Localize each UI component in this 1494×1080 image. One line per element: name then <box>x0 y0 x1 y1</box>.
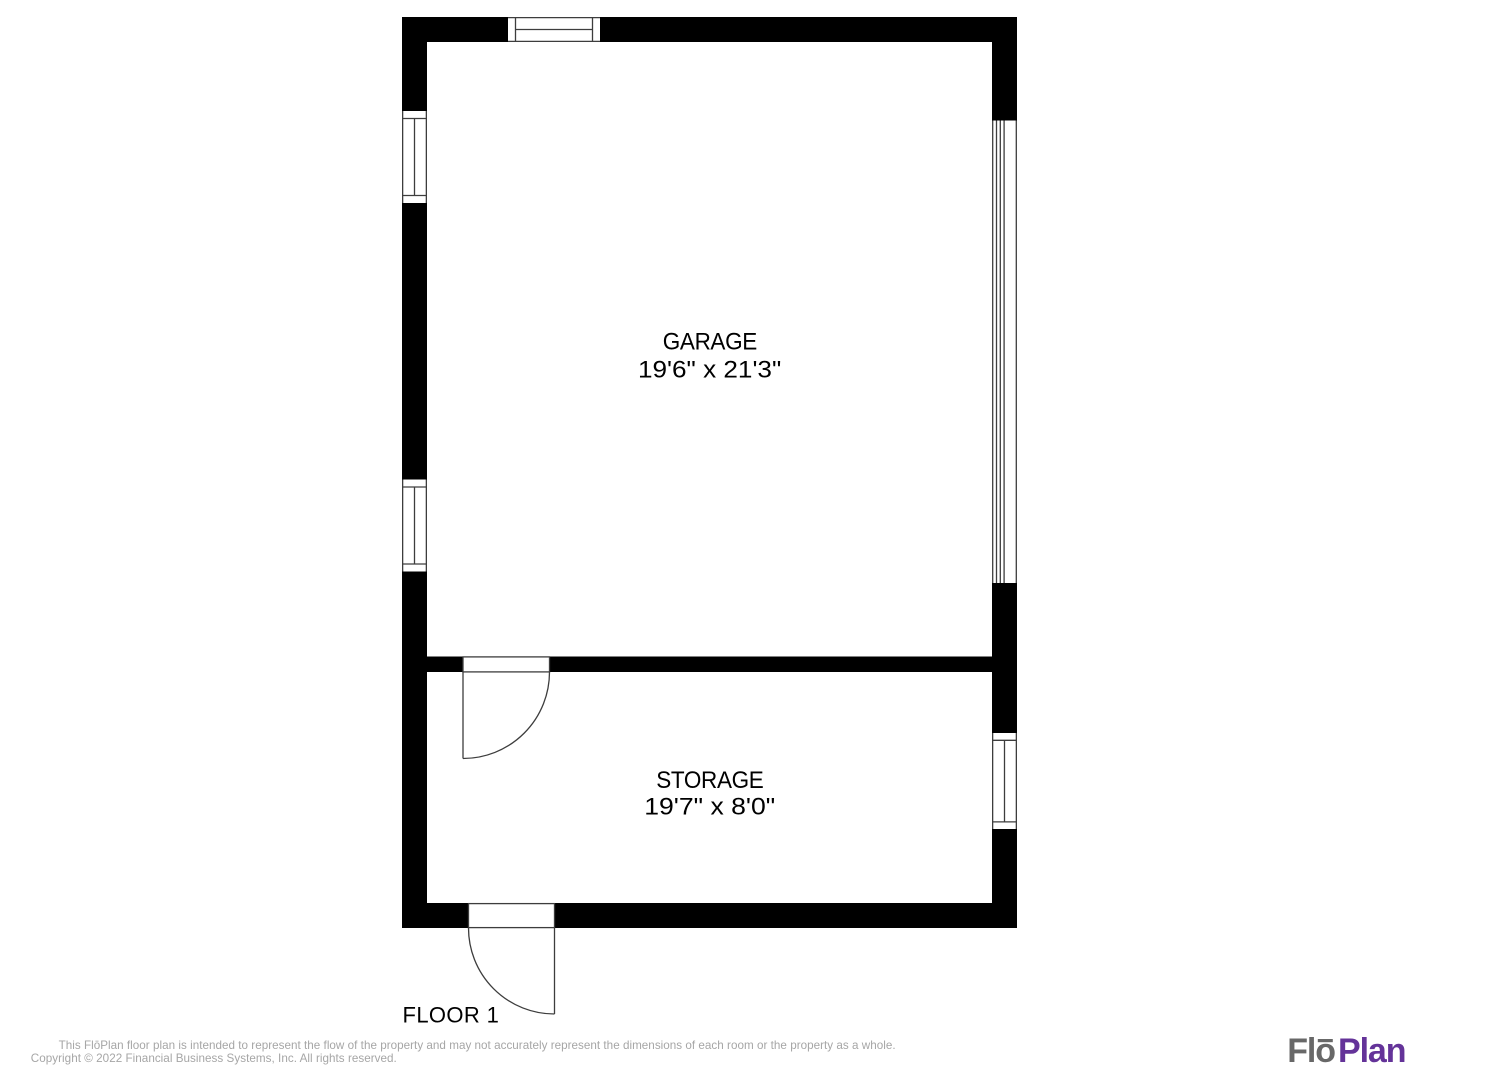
svg-text:19'7" x 8'0": 19'7" x 8'0" <box>644 793 775 820</box>
svg-text:Flo: Flo <box>1287 1032 1336 1070</box>
svg-text:GARAGE: GARAGE <box>663 328 758 355</box>
svg-text:STORAGE: STORAGE <box>656 766 764 793</box>
svg-text:This FlōPlan floor plan is int: This FlōPlan floor plan is intended to r… <box>59 1039 896 1052</box>
svg-text:Plan: Plan <box>1338 1032 1407 1070</box>
svg-text:19'6" x 21'3": 19'6" x 21'3" <box>638 356 781 383</box>
svg-text:FLOOR 1: FLOOR 1 <box>403 1002 499 1027</box>
svg-text:Copyright © 2022 Financial Bus: Copyright © 2022 Financial Business Syst… <box>31 1052 397 1065</box>
